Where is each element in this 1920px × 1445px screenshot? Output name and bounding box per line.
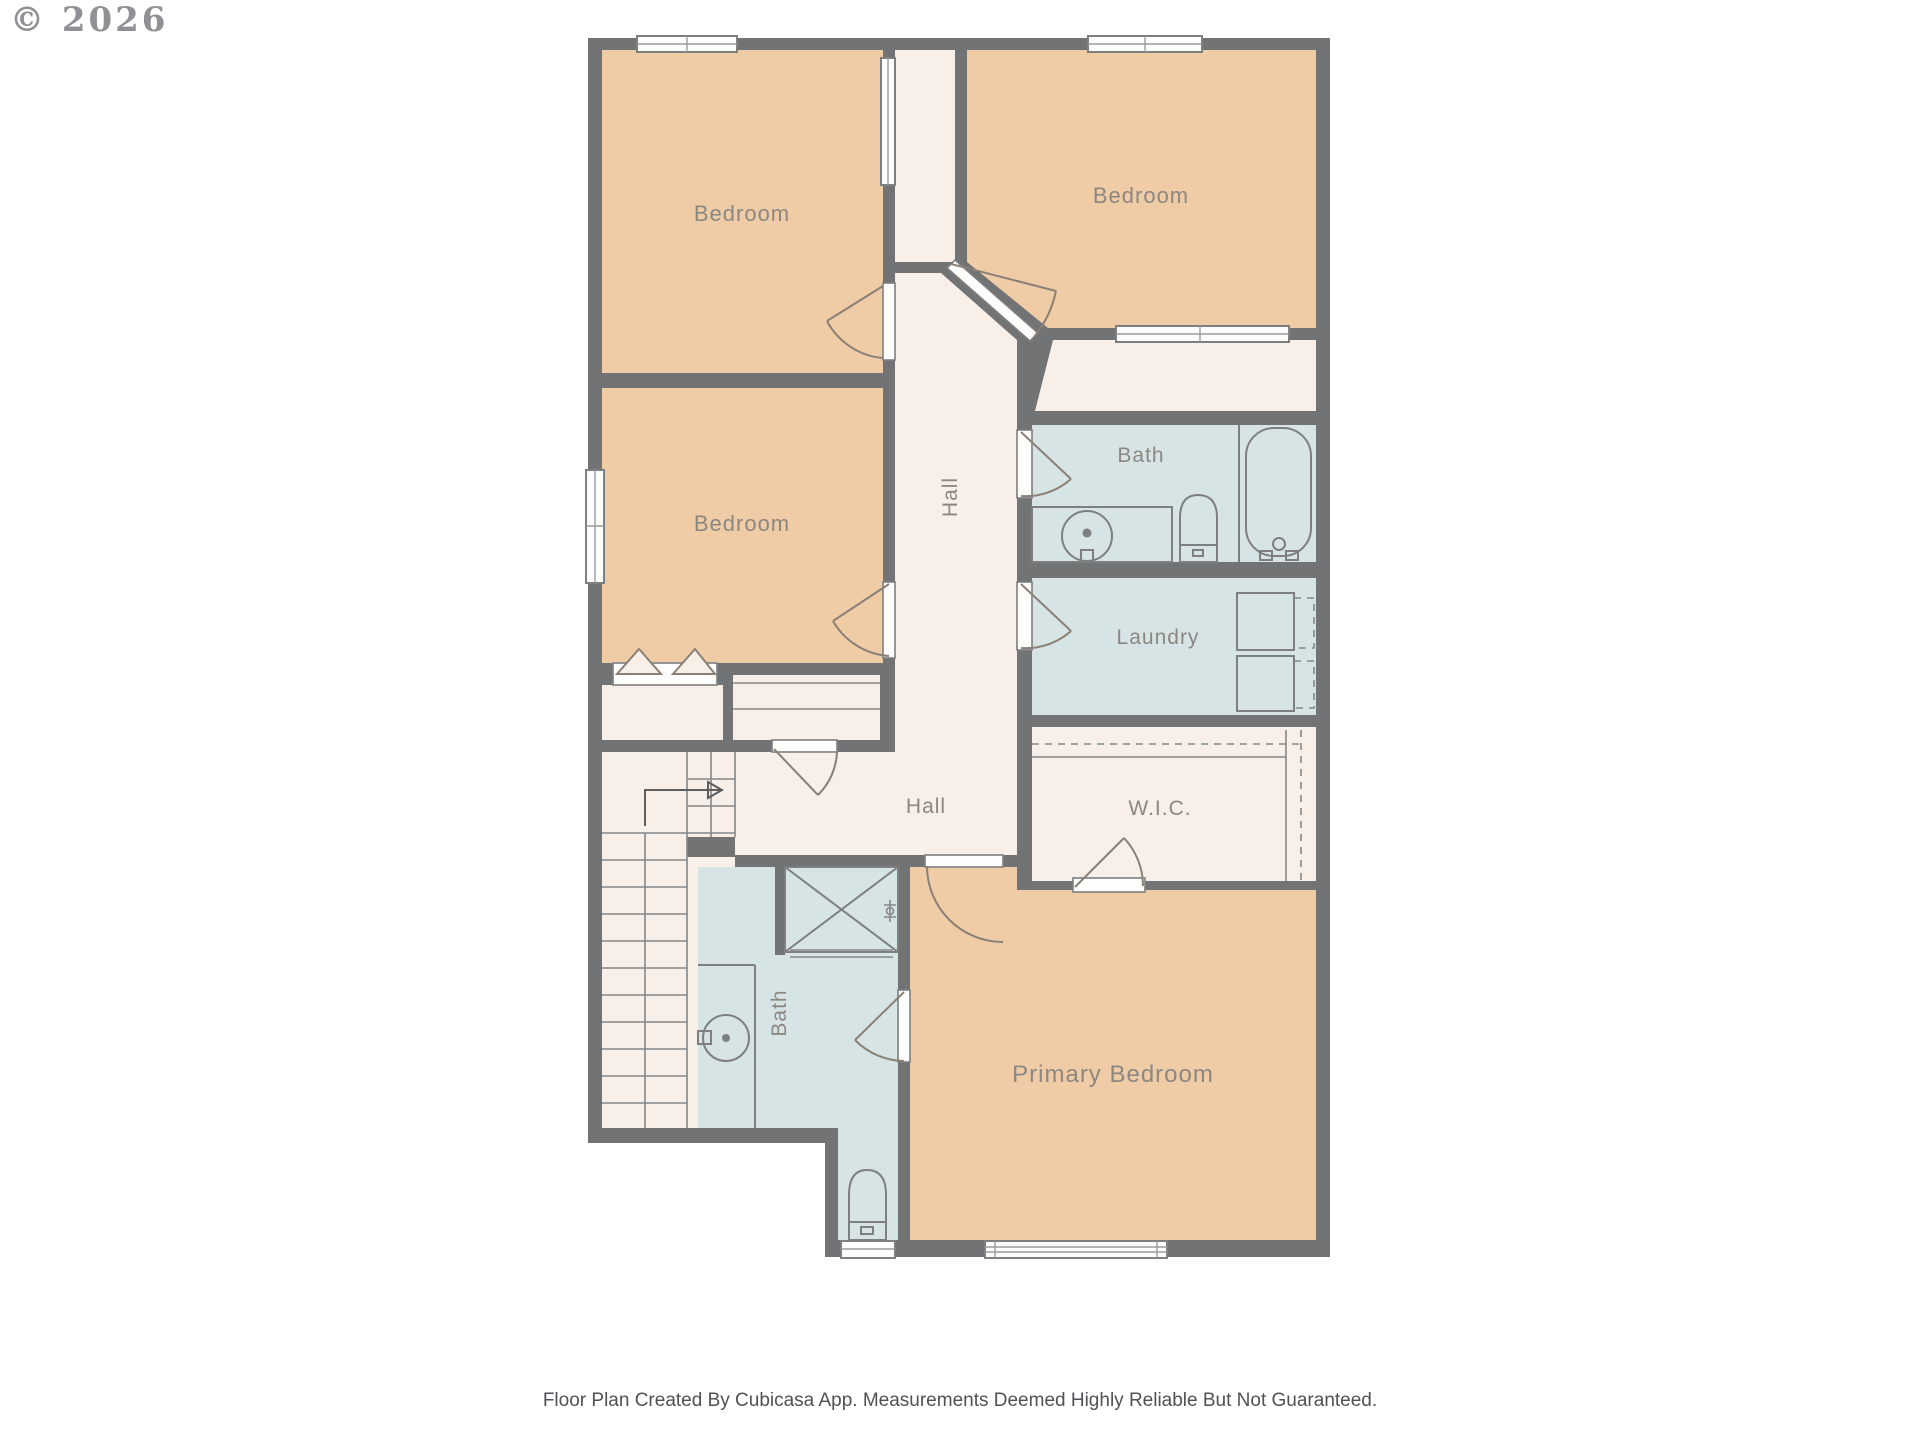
floor-plan: Bedroom Bedroom Bedroom Hall Hall Bath L… (0, 0, 1920, 1440)
wic-label: W.I.C. (1128, 797, 1191, 820)
hall-upper-label: Hall (939, 477, 962, 517)
copyright-notice: © 2026 (10, 0, 168, 40)
bedroom-top-right-label: Bedroom (1093, 183, 1189, 208)
bath-upper-label: Bath (1117, 444, 1164, 467)
stair-wall-stub (687, 837, 735, 857)
nook-floor (1035, 340, 1316, 411)
footer-disclaimer: Floor Plan Created By Cubicasa App. Meas… (0, 1390, 1920, 1412)
laundry-label: Laundry (1117, 626, 1200, 649)
linen-closet-floor (733, 675, 880, 740)
window-bedroom-middle (586, 470, 604, 583)
window-bedroom-top-left (637, 36, 737, 52)
shower-partition-wall (775, 867, 785, 955)
primary-bedroom-label: Primary Bedroom (1012, 1061, 1214, 1088)
hall-lower-label: Hall (906, 795, 946, 818)
window-bath-alcove (841, 1241, 895, 1258)
window-bedroom-top-right (1088, 36, 1202, 52)
window-primary-bedroom (985, 1241, 1167, 1258)
window-hall-stub (881, 58, 895, 185)
window-nook (1116, 326, 1289, 342)
primary-bedroom-floor (910, 867, 1316, 1240)
hall-stub-floor (895, 50, 955, 262)
bath-lower-floor (698, 867, 898, 1240)
closet-floor (602, 685, 723, 740)
bedroom-top-left-label: Bedroom (694, 201, 790, 226)
bedroom-middle-label: Bedroom (694, 511, 790, 536)
bath-lower-label: Bath (768, 989, 791, 1036)
